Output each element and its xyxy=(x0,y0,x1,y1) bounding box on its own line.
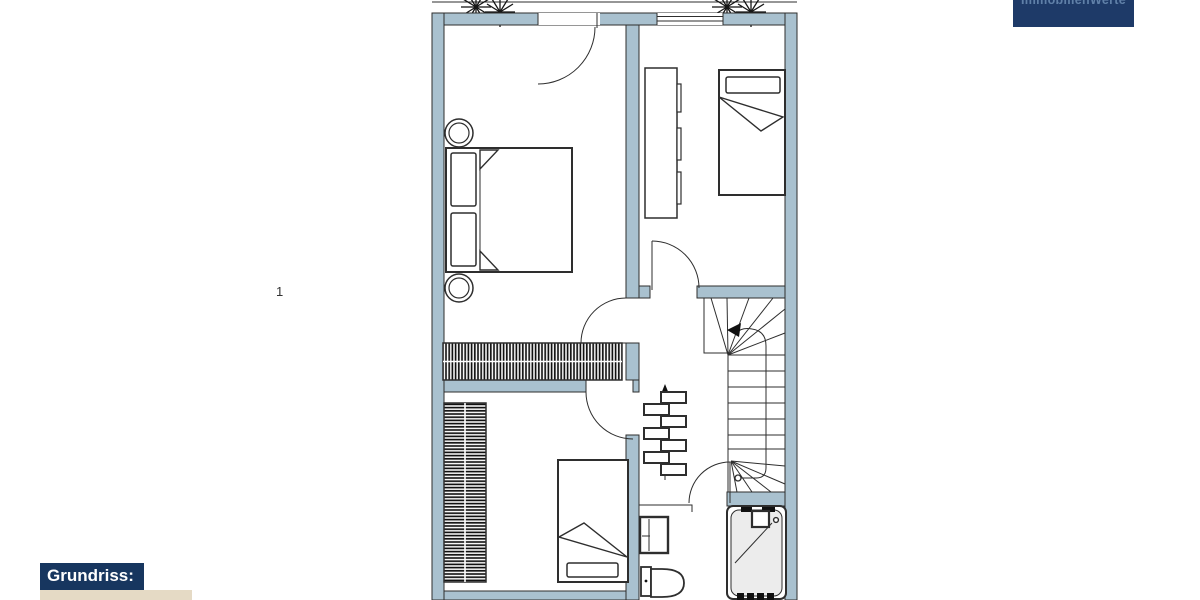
door-arc-bedroom2 xyxy=(652,241,699,288)
wall-left xyxy=(432,13,444,600)
wall-stair-bath xyxy=(727,492,785,506)
caption-label: Grundriss: xyxy=(40,563,144,590)
wall-between-bedrooms xyxy=(626,25,639,298)
wardrobe-vertical xyxy=(444,403,486,582)
shelf-tab xyxy=(677,84,681,112)
toilet-bowl xyxy=(651,569,684,597)
balcony-door xyxy=(538,13,600,84)
wardrobe-horizontal xyxy=(443,343,622,380)
tub-fitting xyxy=(741,507,752,512)
tub-drain xyxy=(774,518,779,523)
pillow xyxy=(451,213,476,266)
nightstand-inner xyxy=(449,123,469,143)
door-arc-bedroom1 xyxy=(581,298,626,343)
page-marker: 1 xyxy=(276,284,283,299)
washbasin xyxy=(640,517,668,553)
winder-staircase xyxy=(704,298,785,492)
shelf-tab xyxy=(677,128,681,160)
window xyxy=(657,13,723,25)
shelf-tab xyxy=(677,172,681,204)
shelf xyxy=(645,68,681,218)
wall-top xyxy=(432,13,797,25)
door-arc-bath xyxy=(689,462,730,503)
caption-accent-bar xyxy=(40,590,192,600)
walk-line-start xyxy=(735,475,741,481)
bathtub xyxy=(727,506,786,599)
wall-stub xyxy=(633,380,639,392)
walk-line-arrow xyxy=(727,323,741,337)
single-bed-bottom xyxy=(558,460,628,582)
double-bed xyxy=(445,119,572,302)
bath-threshold xyxy=(639,505,692,512)
tub-faucet xyxy=(752,511,769,527)
logo-text: ImmobilienWerte xyxy=(1013,0,1134,7)
nightstand-inner xyxy=(449,278,469,298)
wall-bottom xyxy=(444,591,639,600)
stair-treads-straight xyxy=(728,371,785,449)
wall-bedroom2-stair xyxy=(697,286,785,298)
door-arc-room3 xyxy=(586,392,633,439)
single-bed-top xyxy=(719,70,785,195)
logo-banner: ImmobilienWerte xyxy=(1013,0,1134,27)
pillow xyxy=(451,153,476,206)
toilet xyxy=(641,567,684,597)
pillow xyxy=(567,563,618,577)
wall-stub xyxy=(626,343,639,380)
wall-stub xyxy=(639,286,650,298)
stair-treads-upper-fan xyxy=(711,298,785,355)
radiator xyxy=(644,384,686,480)
floorplan-drawing xyxy=(0,0,1200,600)
pillow xyxy=(726,77,780,93)
wall-bedroom1-bottom xyxy=(444,380,586,392)
